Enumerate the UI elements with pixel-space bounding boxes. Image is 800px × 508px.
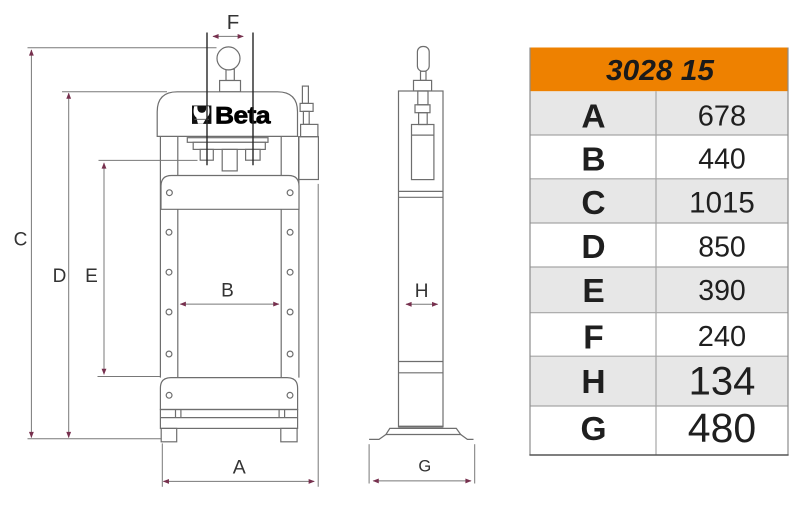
svg-text:G: G	[418, 458, 431, 476]
svg-text:F: F	[227, 11, 240, 34]
svg-text:850: 850	[698, 231, 746, 263]
svg-text:678: 678	[698, 101, 746, 133]
svg-text:B: B	[221, 280, 234, 301]
svg-text:390: 390	[698, 275, 746, 307]
svg-text:H: H	[581, 364, 605, 401]
svg-text:H: H	[415, 281, 429, 302]
svg-text:B: B	[581, 141, 605, 178]
svg-text:Beta: Beta	[215, 102, 271, 129]
svg-text:E: E	[85, 266, 98, 287]
svg-text:A: A	[233, 456, 246, 478]
svg-text:480: 480	[688, 405, 756, 451]
svg-text:D: D	[581, 229, 605, 266]
svg-text:E: E	[582, 273, 604, 310]
svg-text:240: 240	[698, 321, 746, 353]
svg-text:A: A	[581, 98, 605, 135]
svg-text:134: 134	[689, 360, 756, 404]
svg-text:3028 15: 3028 15	[606, 55, 715, 87]
svg-text:F: F	[583, 320, 603, 357]
svg-text:440: 440	[698, 144, 746, 176]
svg-text:1015: 1015	[689, 186, 755, 219]
svg-text:G: G	[580, 411, 606, 448]
svg-text:C: C	[14, 229, 28, 250]
svg-text:C: C	[581, 185, 605, 222]
svg-text:D: D	[53, 266, 67, 287]
